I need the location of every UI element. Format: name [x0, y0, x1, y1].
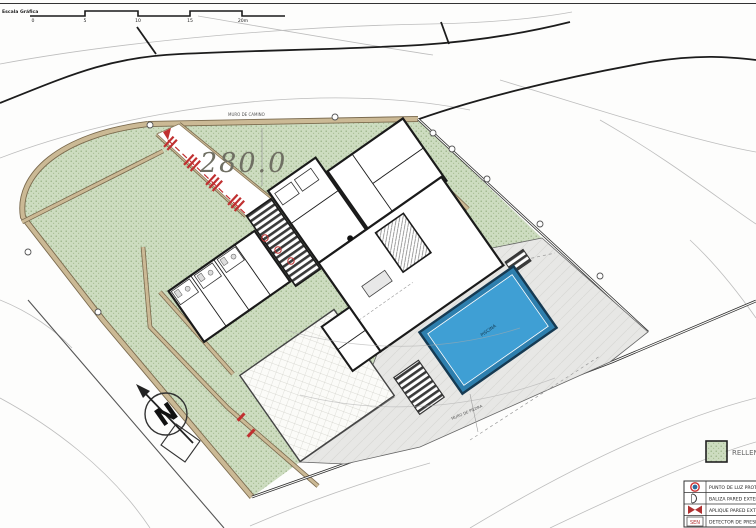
legend-label: DETECTOR DE PRESEN [709, 520, 756, 526]
presence-detector-icon-text: SEN [690, 520, 700, 526]
site-plan-sheet: PISCINA 280.0 MURO DE CAMINO MURO DE PIE… [0, 0, 756, 528]
fill-swatch [706, 441, 727, 462]
scale-tick-1: 5 [84, 18, 87, 24]
protected-light-point-icon-core [693, 485, 698, 490]
scale-tick-0: 0 [32, 18, 35, 24]
legend-label: APLIQUE PARED EXTE [709, 508, 756, 514]
top-wall-label: MURO DE CAMINO [228, 112, 265, 117]
legend-label: BALIZA PARED EXTERI [709, 497, 756, 503]
scale-title: Escala Gráfica [2, 8, 38, 15]
fill-swatch-label: RELLEN [732, 449, 756, 457]
legend-table: PUNTO DE LUZ PROTE BALIZA PARED EXTERI A… [684, 481, 756, 527]
scale-tick-4: 20m [238, 18, 249, 24]
scale-tick-3: 15 [187, 18, 193, 24]
exterior-wall-beacon-icon-dome [692, 494, 697, 503]
elevation-text: 280.0 [199, 148, 287, 179]
legend-label: PUNTO DE LUZ PROTE [709, 485, 756, 491]
site-plan-drawing: PISCINA 280.0 MURO DE CAMINO MURO DE PIE… [0, 0, 756, 528]
scale-tick-2: 10 [135, 18, 141, 24]
